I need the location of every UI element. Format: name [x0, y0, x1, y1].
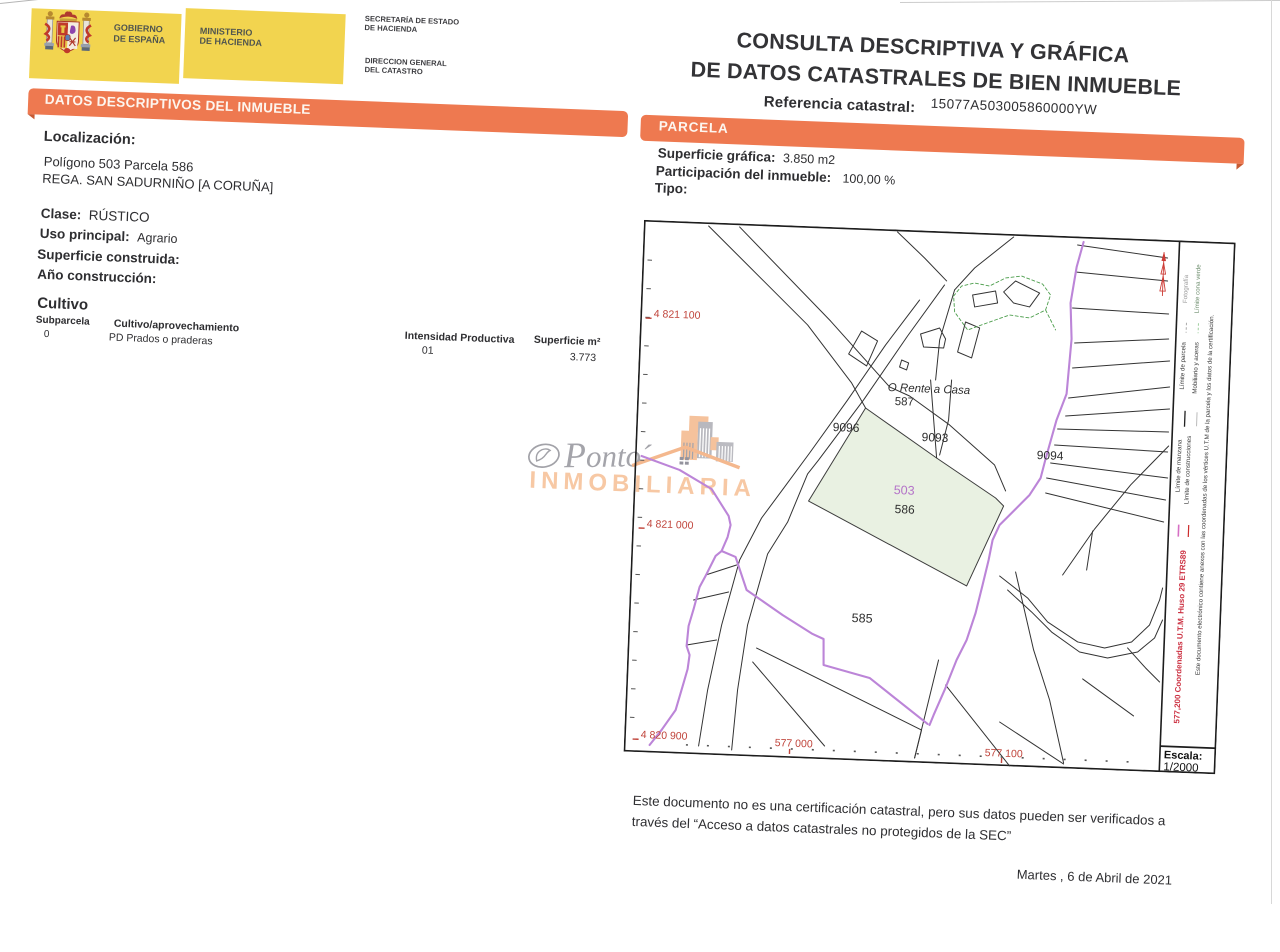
svg-text:503: 503 [894, 483, 915, 498]
svg-text:1/2000: 1/2000 [1164, 761, 1200, 774]
svg-text:4 820 900: 4 820 900 [641, 729, 688, 743]
svg-text:4 821 100: 4 821 100 [654, 308, 701, 322]
svg-text:Mobiliario y aceras: Mobiliario y aceras [1192, 342, 1201, 394]
svg-text:587: 587 [895, 396, 915, 409]
svg-text:Límite de construcciones: Límite de construcciones [1184, 436, 1194, 505]
svg-text:577 000: 577 000 [775, 737, 814, 750]
svg-text:Límite de parcela: Límite de parcela [1179, 341, 1188, 389]
svg-text:Límite cona verde: Límite cona verde [1194, 264, 1203, 314]
svg-text:9093: 9093 [922, 430, 950, 445]
svg-text:577,200 Coordenadas U.T.M. Hus: 577,200 Coordenadas U.T.M. Huso 29 ETRS8… [1173, 550, 1189, 724]
svg-text:585: 585 [852, 611, 873, 626]
svg-text:577 100: 577 100 [985, 747, 1024, 760]
svg-text:O Rente a Casa: O Rente a Casa [888, 382, 971, 397]
svg-text:Fotografía: Fotografía [1182, 274, 1190, 303]
svg-text:9096: 9096 [833, 420, 861, 435]
svg-text:586: 586 [895, 502, 916, 517]
svg-text:4 821 000: 4 821 000 [647, 518, 694, 532]
svg-text:9094: 9094 [1037, 448, 1065, 463]
svg-text:Límite de manzana: Límite de manzana [1175, 439, 1184, 492]
